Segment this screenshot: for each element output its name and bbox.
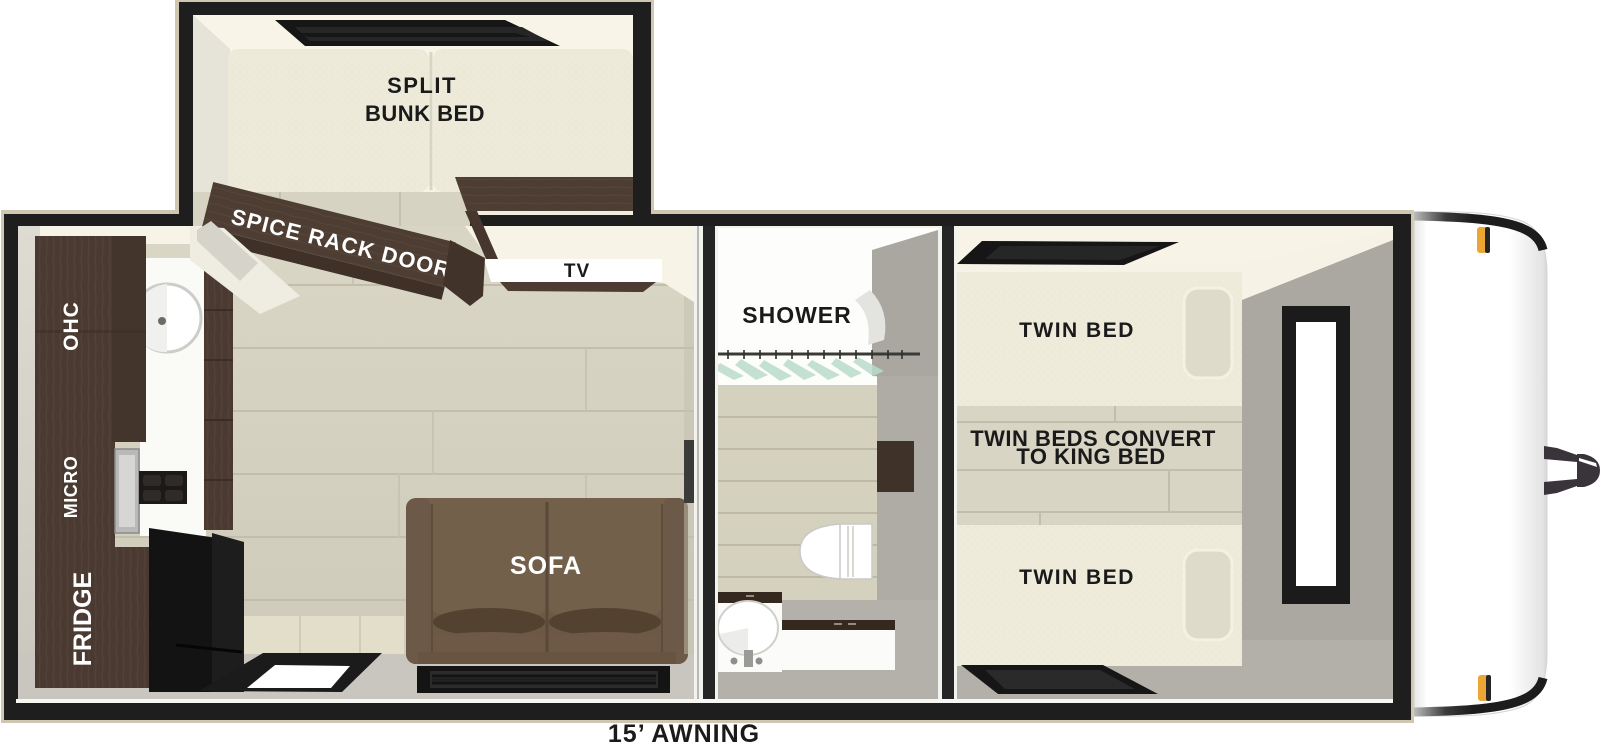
svg-text:SHOWER: SHOWER	[742, 302, 852, 328]
svg-text:SPLIT: SPLIT	[387, 73, 457, 98]
svg-text:TV: TV	[564, 261, 590, 282]
svg-text:BUNK BED: BUNK BED	[365, 101, 485, 126]
svg-text:TWIN BED: TWIN BED	[1019, 319, 1135, 342]
svg-text:TWIN BED: TWIN BED	[1019, 566, 1135, 589]
svg-text:OHC: OHC	[60, 301, 83, 351]
svg-text:TO KING BED: TO KING BED	[1016, 444, 1165, 469]
svg-text:MICRO: MICRO	[61, 456, 81, 519]
svg-text:FRIDGE: FRIDGE	[69, 572, 97, 666]
svg-text:SOFA: SOFA	[510, 552, 582, 580]
svg-text:15’ AWNING: 15’ AWNING	[608, 720, 760, 742]
